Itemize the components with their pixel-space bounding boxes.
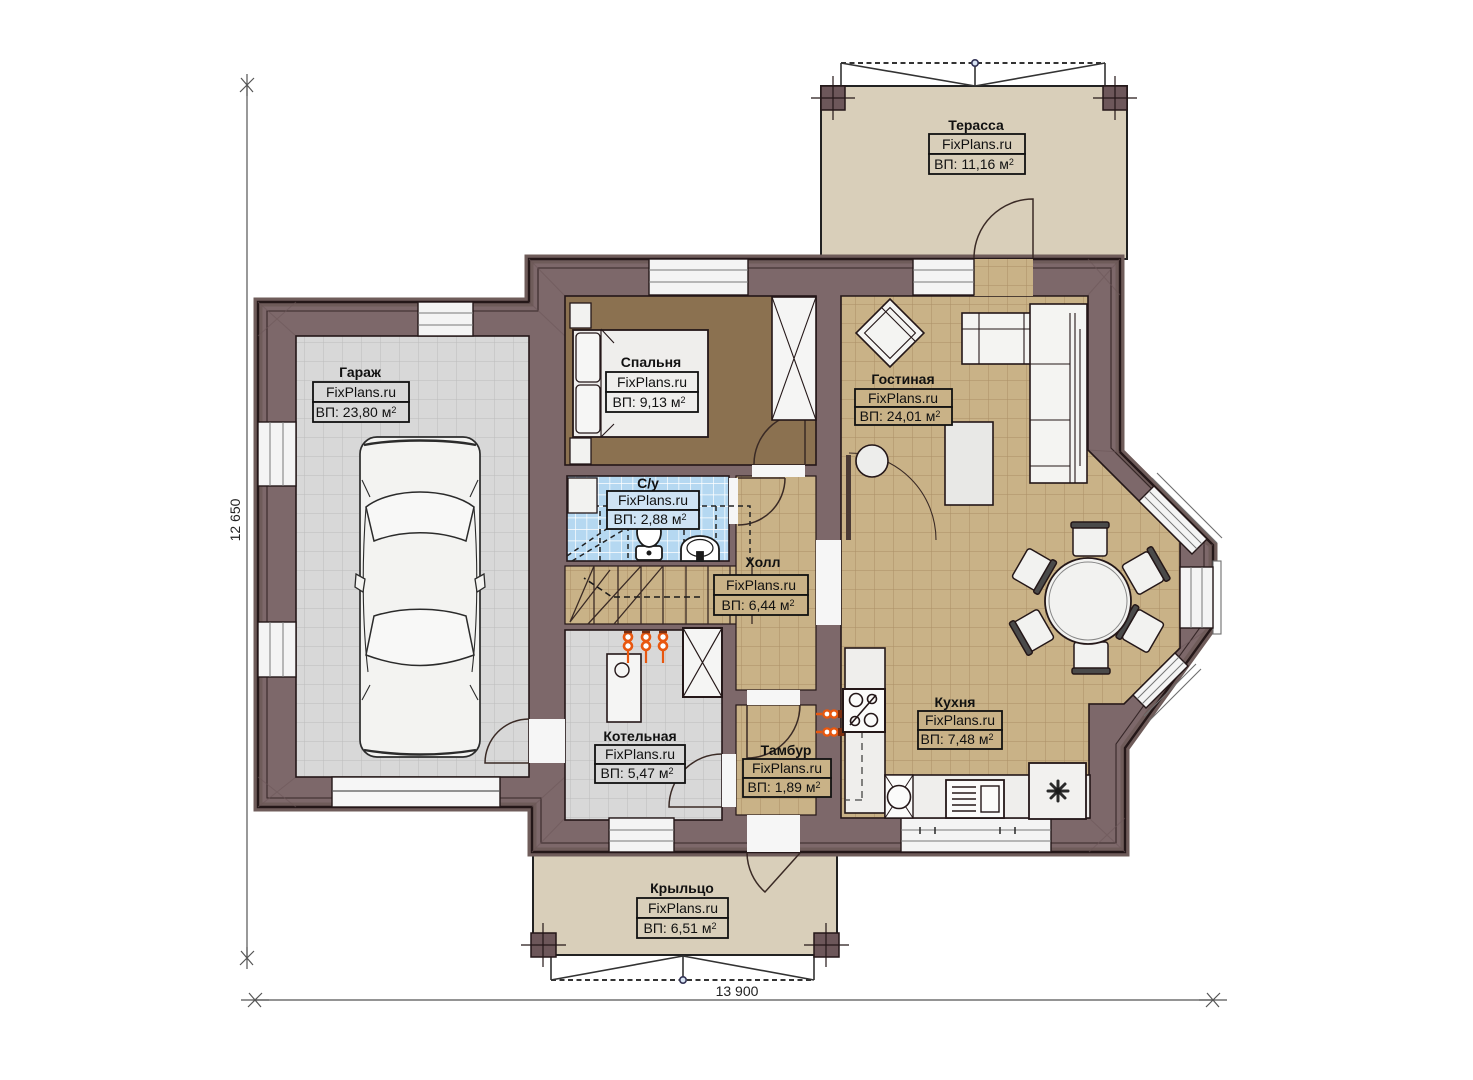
svg-text:FixPlans.ru: FixPlans.ru <box>326 384 396 400</box>
svg-text:FixPlans.ru: FixPlans.ru <box>618 492 688 508</box>
svg-text:FixPlans.ru: FixPlans.ru <box>648 900 718 916</box>
svg-text:Крыльцо: Крыльцо <box>650 880 714 896</box>
svg-text:ВП: 1,89 м2: ВП: 1,89 м2 <box>748 779 821 795</box>
svg-text:ВП: 24,01 м2: ВП: 24,01 м2 <box>860 408 941 424</box>
svg-text:ВП: 5,47 м2: ВП: 5,47 м2 <box>601 765 674 781</box>
svg-text:FixPlans.ru: FixPlans.ru <box>617 374 687 390</box>
svg-text:ВП: 2,88 м2: ВП: 2,88 м2 <box>614 511 687 527</box>
svg-text:FixPlans.ru: FixPlans.ru <box>868 390 938 406</box>
svg-text:Гостиная: Гостиная <box>871 371 934 387</box>
svg-text:FixPlans.ru: FixPlans.ru <box>605 746 675 762</box>
svg-text:ВП: 23,80 м2: ВП: 23,80 м2 <box>316 404 397 420</box>
svg-text:Кухня: Кухня <box>935 694 976 710</box>
svg-text:13 900: 13 900 <box>716 983 759 999</box>
svg-text:С/у: С/у <box>637 475 659 491</box>
svg-text:Холл: Холл <box>745 554 780 570</box>
svg-text:FixPlans.ru: FixPlans.ru <box>752 760 822 776</box>
svg-text:Терасса: Терасса <box>948 117 1004 133</box>
svg-text:Спальня: Спальня <box>621 354 681 370</box>
svg-text:Гараж: Гараж <box>339 364 382 380</box>
svg-text:ВП: 6,44 м2: ВП: 6,44 м2 <box>722 597 795 613</box>
svg-text:ВП: 11,16 м2: ВП: 11,16 м2 <box>934 156 1014 172</box>
svg-text:FixPlans.ru: FixPlans.ru <box>942 136 1012 152</box>
svg-text:Тамбур: Тамбур <box>761 742 812 758</box>
svg-text:ВП: 6,51 м2: ВП: 6,51 м2 <box>644 920 717 936</box>
svg-text:12 650: 12 650 <box>227 498 243 541</box>
svg-text:FixPlans.ru: FixPlans.ru <box>726 577 796 593</box>
svg-text:ВП: 9,13 м2: ВП: 9,13 м2 <box>613 394 686 410</box>
svg-text:ВП: 7,48 м2: ВП: 7,48 м2 <box>921 731 994 747</box>
svg-text:FixPlans.ru: FixPlans.ru <box>925 712 995 728</box>
svg-text:Котельная: Котельная <box>603 728 676 744</box>
